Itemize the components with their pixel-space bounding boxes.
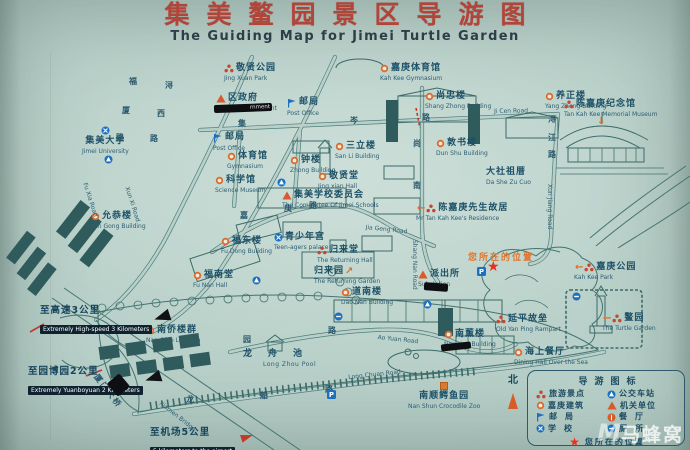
attraction-icon	[426, 204, 436, 213]
legend-item-label: 邮局	[549, 412, 581, 421]
poi-label: 邮局Post Office	[213, 132, 245, 153]
poi-label: ←陈嘉庚先生故居Mr Tan Kah Kee's Residence	[416, 203, 508, 223]
attraction-icon	[536, 390, 546, 399]
your-location-star-icon: ★	[487, 261, 500, 273]
government-icon	[607, 401, 617, 410]
poi-label: 敦书楼Dun Shu Building	[436, 138, 488, 158]
poi-name-zh: 道南楼	[352, 287, 382, 297]
poi-name-en: Dining Hall Over the Sea	[514, 358, 588, 367]
road-name-label: 西	[157, 108, 165, 119]
building-icon	[221, 237, 230, 246]
poi-name-zh: 邮局	[225, 132, 245, 142]
school-icon	[536, 424, 545, 433]
road-name-label: Shang Nan Road	[411, 240, 418, 290]
distance-note: 至机场5公里5 kilometers to the airport	[150, 424, 235, 450]
poi-name-zh: 归来堂	[329, 245, 359, 255]
building-icon	[425, 92, 434, 101]
poi-name-en: Post Office	[287, 109, 319, 118]
poi-label: 敬贤堂Jing xian Hall	[318, 171, 359, 191]
poi-label: 龙舟池Long Zhou Pool	[243, 349, 318, 369]
poi-name-en: Shang Zhong Building	[425, 102, 491, 111]
legend-item: 嘉庚建筑	[536, 401, 607, 412]
school-icon	[274, 233, 283, 242]
distance-en: Extremely High-speed 3 Kilometers	[40, 325, 152, 334]
road-name-label: 福	[129, 76, 137, 87]
poi-name-zh: 陈嘉庚纪念馆	[576, 99, 636, 109]
attraction-icon	[317, 246, 327, 255]
attraction-icon	[496, 315, 506, 324]
poi-label: 南顺鳄鱼园Nan Shun Crocodile Zoo	[408, 382, 480, 411]
poi-name-en: Kah Kee Park	[574, 273, 636, 282]
road-name-label: 路	[116, 132, 124, 143]
road-name-label: 路	[328, 325, 336, 336]
road-name-label: 路	[309, 200, 317, 211]
building-icon	[436, 139, 445, 148]
coastline	[505, 166, 690, 256]
poi-name-zh: 陈嘉庚先生故居	[438, 203, 508, 213]
distance-note: 至园博园2公里Extremely Yuanboyuan 2 Kilometers	[28, 363, 143, 396]
poi-name-en: The Returning Hall	[317, 256, 373, 265]
svg-text:P: P	[479, 268, 484, 276]
poi-name-zh: 派出所	[430, 269, 460, 279]
bus-icon	[252, 276, 261, 285]
poi-label: 延平故垒Old Yan Ping Rampart	[496, 314, 561, 334]
poi-name-zh: 三立楼	[346, 141, 376, 151]
distance-zh: 至高速3公里	[40, 302, 152, 316]
poi-name-zh: 龙舟池	[243, 349, 318, 359]
poi-label: 体育馆Gymnasium	[227, 151, 268, 171]
zoo-icon	[408, 382, 480, 390]
building-icon	[444, 330, 453, 339]
compass-arrow-icon	[508, 388, 518, 409]
poi-name-zh: 敬贤公园	[236, 63, 276, 73]
road-name-label: 尚	[413, 138, 421, 149]
building-icon	[536, 401, 545, 410]
poi-label: 福东楼Fu Dong Building	[221, 236, 272, 256]
poi-name-zh: 归来园	[314, 266, 344, 276]
road-name-label: 路	[548, 149, 556, 160]
distance-zh: 至园博园2公里	[28, 363, 143, 377]
distance-zh: 至机场5公里	[150, 424, 235, 438]
poi-name-zh: 南顺鳄鱼园	[419, 391, 469, 401]
poi-name-en: Dun Shu Building	[436, 149, 488, 158]
map-sign-photo: 集美鳌园景区导游图 The Guiding Map for Jimei Turt…	[0, 0, 690, 450]
road-name-label: 园	[243, 334, 251, 345]
poi-name-zh: 大社祖厝	[486, 167, 526, 177]
building-icon	[227, 152, 236, 161]
building-icon	[514, 348, 523, 357]
building-icon	[193, 271, 202, 280]
building-icon	[380, 64, 389, 73]
poi-name-en: Nan Shun Crocodile Zoo	[408, 402, 480, 411]
bus-icon	[277, 178, 286, 187]
building-icon	[318, 172, 327, 181]
poi-label: 尚忠楼Shang Zhong Building	[425, 91, 491, 111]
road-name-label: 南	[413, 180, 421, 191]
poi-name-zh: 青少年宫	[285, 232, 325, 242]
poi-label: ←嘉庚公园Kah Kee Park	[574, 262, 636, 282]
poi-name-en: The Committee Of Jimei Schools	[282, 201, 379, 210]
legend-item: 机关单位	[607, 401, 678, 412]
poi-name-zh: 延平故垒	[508, 314, 548, 324]
poi-name-en: Jing Xuan Park	[224, 74, 276, 83]
government-icon	[216, 94, 226, 103]
poi-name-en: The Turtle Garden	[602, 324, 656, 333]
legend-item: 公交车站	[607, 389, 678, 400]
parking-icon: P	[477, 267, 486, 276]
poi-label: 嘉庚体育馆Kah Kee Gymnasium	[380, 63, 442, 83]
poi-name-zh: 南薰楼	[455, 329, 485, 339]
poi-name-en: Mr Tan Kah Kee's Residence	[416, 214, 508, 223]
poi-label: 科学馆Science Museum	[215, 175, 266, 195]
legend-item-label: 机关单位	[620, 401, 656, 410]
watermark-logo: M	[597, 419, 621, 447]
poi-name-zh: 嘉庚公园	[596, 262, 636, 272]
post-icon	[536, 412, 546, 422]
poi-name-zh: 嘉庚体育馆	[391, 63, 441, 73]
poi-name-en: Kah Kee Gymnasium	[380, 74, 442, 83]
poi-name-zh: 区政府	[228, 93, 258, 103]
road-name-label: 龙	[186, 394, 194, 405]
poi-label: 邮局Post Office	[287, 97, 319, 118]
bus-icon	[423, 300, 432, 309]
your-location-label: 您所在的位置	[468, 250, 534, 263]
poi-name-en: The Returning Garden	[314, 277, 380, 286]
post-icon	[287, 98, 297, 108]
attraction-icon	[564, 100, 574, 109]
poi-name-zh: 福南堂	[204, 270, 234, 280]
poi-label: 大社祖厝Da She Zu Cuo	[486, 167, 531, 187]
poi-name-zh: 鳌园	[624, 313, 644, 323]
poi-label: 道南楼Dao Nan Building	[341, 287, 393, 307]
poi-name-zh: 集美学校委员会	[294, 190, 364, 200]
building-icon	[290, 156, 299, 165]
poi-name-en: Dao Nan Building	[341, 298, 393, 307]
poi-name-zh: 尚忠楼	[436, 91, 466, 101]
poi-name-en: San Li Building	[335, 152, 379, 161]
poi-label: 敬贤公园Jing Xuan Park	[224, 63, 276, 83]
road-name-label: 江	[548, 132, 556, 143]
attraction-icon	[224, 64, 234, 73]
header: 集美鳌园景区导游图 The Guiding Map for Jimei Turt…	[0, 0, 690, 44]
arrow-left-icon: ←	[575, 262, 583, 273]
poi-label: 南侨楼群Nan Qiao Lou Qun	[146, 325, 200, 345]
poi-name-zh: 科学馆	[226, 175, 256, 185]
poi-name-zh: 体育馆	[238, 151, 268, 161]
road-name-label: 船	[260, 390, 268, 401]
building-icon	[341, 288, 350, 297]
poi-name-en: Fu Dong Building	[221, 247, 272, 256]
poi-name-en: Fu Nan Hall	[193, 281, 234, 290]
bus-icon	[607, 390, 616, 399]
poi-name-zh: 允恭楼	[102, 211, 132, 221]
poi-name-zh: 钟楼	[301, 155, 321, 165]
poi-label: 海上餐厅Dining Hall Over the Sea	[514, 347, 588, 367]
poi-name-zh: 敬贤堂	[329, 171, 359, 181]
poi-name-en: Nan Qiao Lou Qun	[146, 336, 200, 345]
legend-item-label: 学校	[548, 424, 580, 433]
compass-north-label: 北	[505, 371, 521, 386]
poi-label: 福南堂Fu Nan Hall	[193, 270, 234, 290]
government-icon	[282, 191, 292, 200]
poi-label: 陈嘉庚纪念馆Tan Kah Kee Memorial Museum	[564, 99, 657, 119]
poi-label: 归来堂The Returning Hall	[317, 245, 373, 265]
government-icon	[418, 270, 428, 279]
poi-name-zh: 敦书楼	[447, 138, 477, 148]
toilet-icon	[572, 292, 581, 301]
road-name-label: Ji Cen Road	[494, 107, 528, 115]
road-name-label: 集	[238, 118, 246, 129]
poi-label: ←鳌园The Turtle Garden	[602, 313, 656, 333]
building-icon	[335, 142, 344, 151]
building-icon	[215, 176, 224, 185]
poi-name-en: Old Yan Ping Rampart	[496, 325, 561, 334]
legend-item: 旅游景点	[536, 389, 607, 400]
arrow-ne-icon: ↗	[345, 266, 353, 277]
poi-name-en: Tan Kah Kee Memorial Museum	[564, 110, 657, 119]
star-icon: ★	[569, 435, 582, 449]
watermark: M马蜂窝	[597, 419, 684, 447]
map-title-en: The Guiding Map for Jimei Turtle Garden	[0, 30, 690, 44]
poi-name-en: Science Museum	[215, 186, 266, 195]
arrow-left-icon: ←	[417, 203, 425, 214]
svg-text:P: P	[329, 391, 334, 399]
poi-label: 归来园↗The Returning Garden	[314, 266, 380, 286]
arrow-down-icon: ↓	[597, 116, 605, 127]
poi-name-zh: 福东楼	[232, 236, 262, 246]
poi-label: 三立楼San Li Building	[335, 141, 379, 161]
legend-item-label: 旅游景点	[549, 389, 585, 398]
road-name-label: 浔	[165, 80, 173, 91]
attraction-icon	[612, 314, 622, 323]
road-name-label: 岑	[350, 115, 358, 126]
distance-note: 至高速3公里Extremely High-speed 3 Kilometers	[40, 302, 152, 335]
legend-item-label: 嘉庚建筑	[548, 401, 584, 410]
road-name-label: 嘉	[240, 210, 248, 221]
toilet-icon	[334, 312, 343, 321]
memorial-museum	[556, 112, 668, 174]
map-title-zh: 集美鳌园景区导游图	[0, 0, 690, 30]
poi-name-en: Yun Gong Building	[91, 222, 146, 231]
poi-label: 集美学校委员会The Committee Of Jimei Schools	[282, 190, 379, 210]
road-name-label: 浔	[548, 114, 556, 125]
arrow-left-icon: ←	[603, 313, 611, 324]
parking-icon: P	[327, 390, 336, 399]
compass: 北	[505, 371, 521, 409]
legend-item-label: 公交车站	[619, 389, 655, 398]
bus-icon	[104, 155, 113, 164]
marker-smudge	[424, 282, 448, 292]
poi-name-zh: 海上餐厅	[525, 347, 565, 357]
road-name-label: 厦	[122, 105, 130, 116]
attraction-icon	[584, 263, 594, 272]
poi-name-zh: 南侨楼群	[157, 325, 197, 335]
building-icon	[545, 92, 554, 101]
watermark-text: 马蜂窝	[621, 424, 684, 446]
poi-name-en: Gymnasium	[227, 162, 268, 171]
road-name-label: Xun Jiang Road	[546, 184, 553, 229]
road-name-label: 路	[150, 133, 158, 144]
road-name-label: 路	[422, 112, 430, 123]
road-name-label: 庚	[284, 203, 292, 214]
poi-name-en: Long Zhou Pool	[263, 360, 318, 369]
post-icon	[213, 133, 223, 143]
poi-name-en: Da She Zu Cuo	[486, 178, 531, 187]
legend-title: 导游图标	[536, 374, 678, 387]
poi-name-zh: 邮局	[299, 97, 319, 107]
